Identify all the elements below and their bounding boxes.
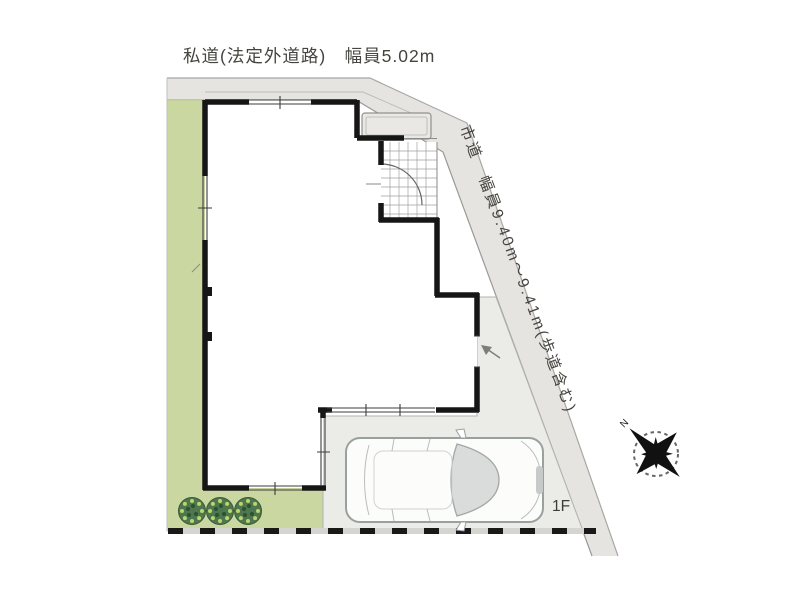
floor-label: 1F <box>552 498 570 515</box>
shrub-icon <box>179 498 206 525</box>
private-road-label: 私道(法定外道路) 幅員5.02m <box>183 46 435 66</box>
wall-vent <box>207 332 212 341</box>
site-plan-canvas: N 私道(法定外道路) 幅員5.02m 市道 幅員9.40m～9.41m(歩道含… <box>0 0 794 600</box>
shrub-icon <box>207 498 234 525</box>
wall-vent <box>207 287 212 296</box>
entrance-canopy <box>362 113 431 139</box>
site-plan: N 私道(法定外道路) 幅員5.02m 市道 幅員9.40m～9.41m(歩道含… <box>0 0 794 600</box>
car-icon <box>346 429 543 531</box>
shrub-icon <box>235 498 262 525</box>
